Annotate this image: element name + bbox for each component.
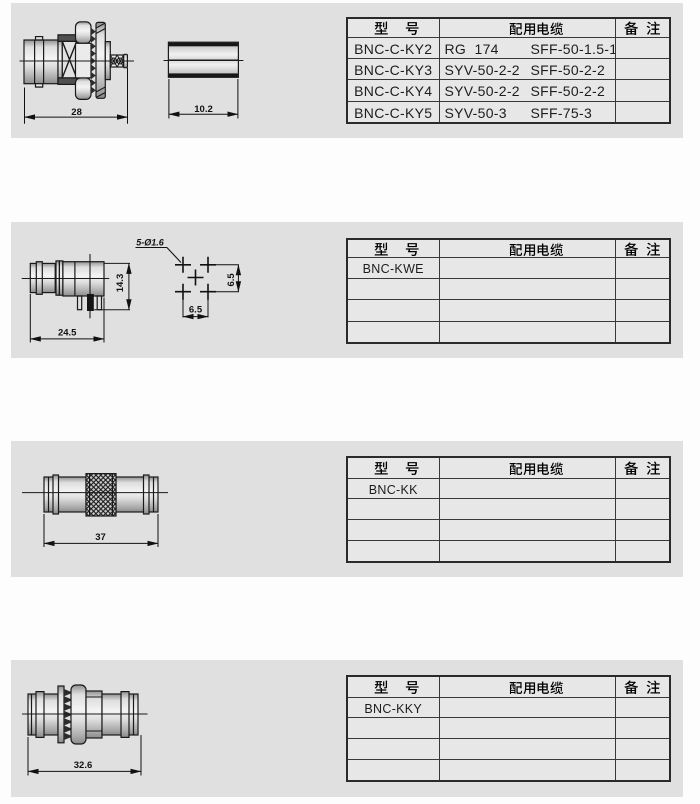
svg-text:14.3: 14.3	[115, 274, 126, 293]
svg-text:5-Ø1.6: 5-Ø1.6	[136, 238, 165, 248]
svg-text:37: 37	[95, 532, 106, 543]
svg-text:6.5: 6.5	[226, 273, 237, 287]
svg-text:24.5: 24.5	[58, 328, 77, 339]
svg-text:10.2: 10.2	[194, 104, 213, 115]
svg-text:28: 28	[71, 107, 82, 118]
svg-text:6.5: 6.5	[189, 305, 203, 316]
svg-text:32.6: 32.6	[74, 760, 93, 771]
